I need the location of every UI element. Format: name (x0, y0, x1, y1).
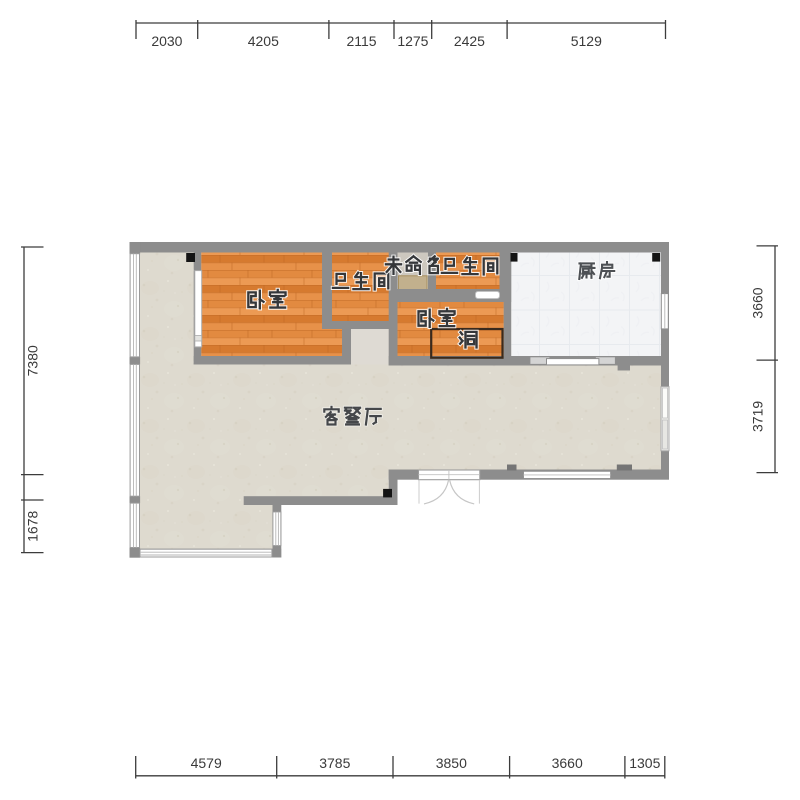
svg-text:4205: 4205 (248, 33, 279, 49)
svg-text:5129: 5129 (571, 33, 602, 49)
svg-text:3850: 3850 (436, 755, 467, 771)
svg-text:3660: 3660 (750, 287, 766, 318)
svg-text:2425: 2425 (454, 33, 485, 49)
svg-text:3719: 3719 (750, 401, 766, 432)
svg-text:1275: 1275 (397, 33, 428, 49)
svg-text:7380: 7380 (25, 345, 41, 376)
svg-text:2115: 2115 (346, 33, 376, 49)
svg-text:3785: 3785 (319, 755, 350, 771)
svg-text:1678: 1678 (25, 511, 41, 542)
svg-text:4579: 4579 (191, 755, 222, 771)
svg-text:1305: 1305 (629, 755, 660, 771)
svg-text:2030: 2030 (151, 33, 182, 49)
svg-text:3660: 3660 (552, 755, 583, 771)
